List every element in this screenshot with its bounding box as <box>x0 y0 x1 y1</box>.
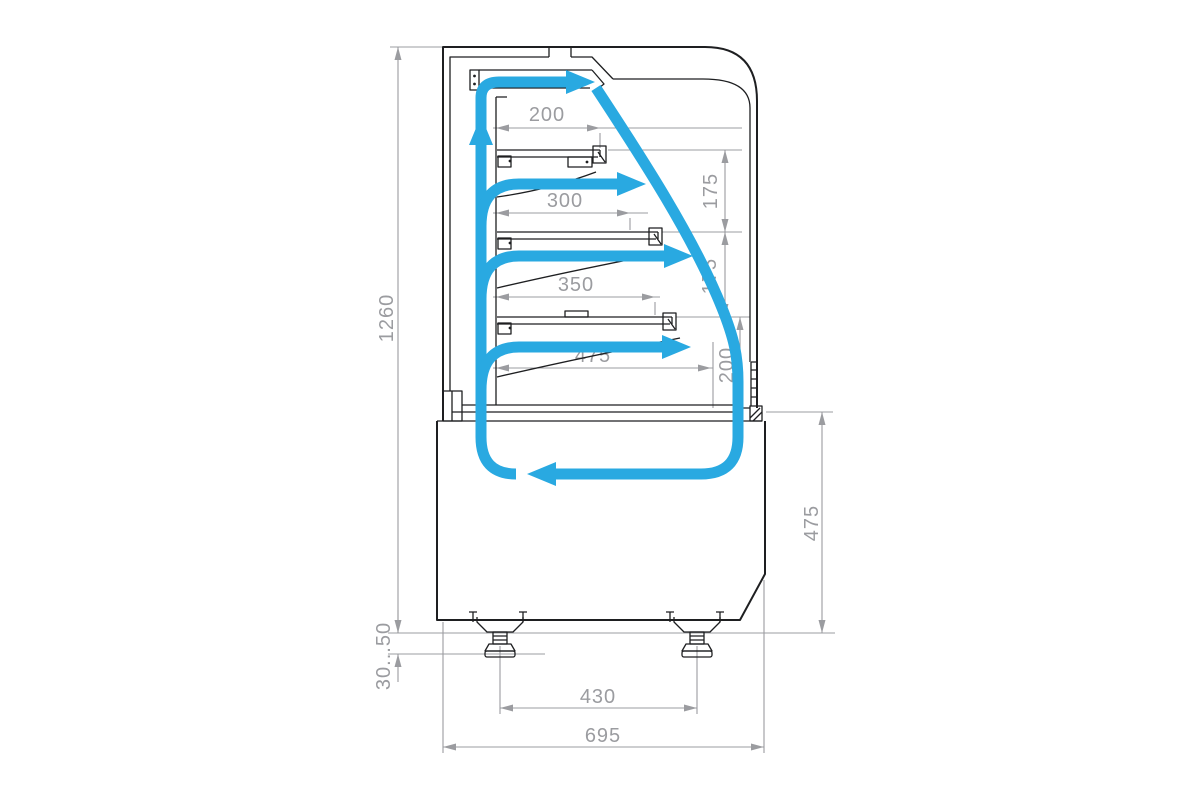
deck-sill-hatching <box>750 408 762 421</box>
dimension-arrowheads <box>395 47 826 751</box>
shelf2-front-clip <box>649 228 662 245</box>
display-case-section-drawing: 200 300 350 475 430 695 1260 30...50 175… <box>0 0 1200 800</box>
airflow-up-arrow-icon <box>469 116 493 145</box>
foot-threaded-stem <box>493 632 507 644</box>
foot-thread-lines <box>493 636 507 640</box>
dim-shelf1-to-shelf2: 175 <box>700 173 722 209</box>
dim-leg-adjustment: 30...50 <box>373 622 395 690</box>
dim-leg-spacing: 430 <box>580 686 616 708</box>
canopy-rivet <box>473 75 476 78</box>
canopy-rivet <box>473 83 476 86</box>
dim-shelf1-width: 200 <box>529 104 565 126</box>
dim-shelf2-width: 300 <box>547 190 583 212</box>
right-adjustable-foot <box>674 617 720 657</box>
foot-threaded-stem <box>690 632 704 644</box>
base-and-legs <box>469 612 724 657</box>
airflow-top-arrow-icon <box>566 70 595 94</box>
shelf1-front-clip <box>593 146 606 163</box>
shelf1-plate <box>497 150 600 157</box>
shelf2-plate <box>497 232 658 239</box>
dim-overall-height: 1260 <box>376 294 398 343</box>
technical-drawing-canvas: 200 300 350 475 430 695 1260 30...50 175… <box>0 0 1200 800</box>
airflow-return-arrow-icon <box>527 462 556 486</box>
shelf3-front-clip <box>663 313 676 330</box>
shelf2-bracket-screw <box>509 242 512 245</box>
shelf3-top-clip <box>565 311 588 317</box>
foot-thread-lines <box>690 636 704 640</box>
shelf3-bracket-screw <box>509 327 512 330</box>
top-panel-seams <box>549 47 571 57</box>
airflow-riser-path <box>481 82 568 474</box>
canopy-bar-end-cap <box>470 70 479 90</box>
airflow-branch1-arrow-icon <box>617 172 646 196</box>
shelf1-bracket-screw <box>509 160 512 163</box>
dim-base-height: 475 <box>801 505 823 541</box>
dim-shelf3-width: 350 <box>558 274 594 296</box>
shelf1-bracket-screw <box>586 161 589 164</box>
shelf1-mid-bracket <box>568 157 592 167</box>
back-air-panel <box>496 97 507 405</box>
shelf3-plate <box>497 317 672 324</box>
airflow-arrows <box>469 70 738 486</box>
left-adjustable-foot <box>477 617 523 657</box>
dim-overall-depth: 695 <box>585 725 621 747</box>
